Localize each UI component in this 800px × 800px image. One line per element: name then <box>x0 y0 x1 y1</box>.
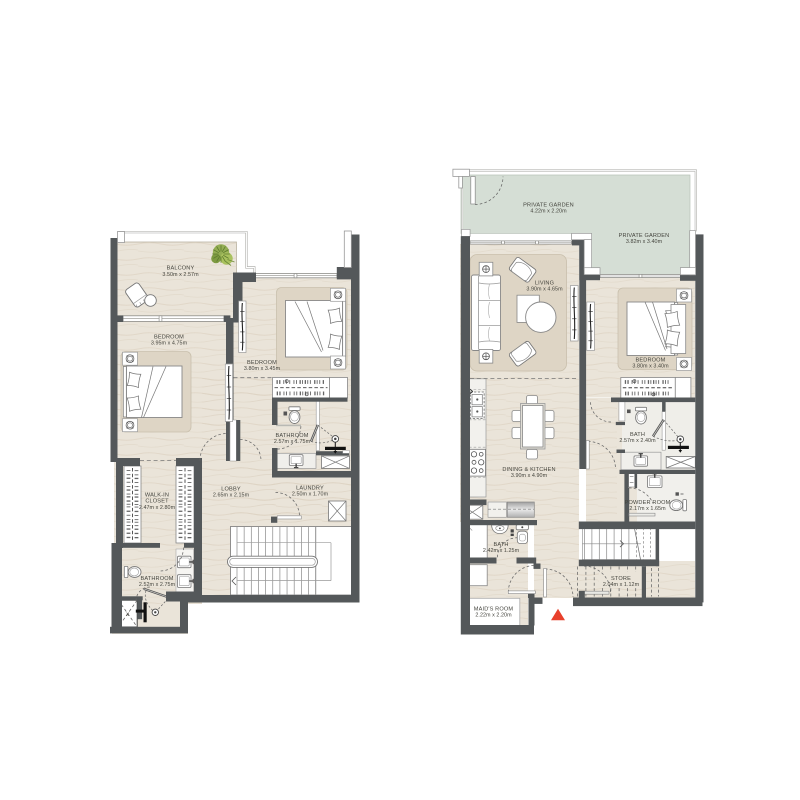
svg-text:3.50m x 2.57m: 3.50m x 2.57m <box>162 272 199 278</box>
svg-text:LOBBY: LOBBY <box>221 487 241 493</box>
svg-text:3.80m x 3.40m: 3.80m x 3.40m <box>632 364 669 370</box>
svg-text:BATH: BATH <box>493 542 508 548</box>
svg-text:PRIVATE GARDEN: PRIVATE GARDEN <box>619 233 670 239</box>
svg-text:2.52m x 2.75m: 2.52m x 2.75m <box>139 582 176 588</box>
svg-text:3.82m x 3.40m: 3.82m x 3.40m <box>626 239 663 245</box>
svg-text:BATHROOM: BATHROOM <box>275 433 308 439</box>
svg-text:2.04m x 1.12m: 2.04m x 1.12m <box>603 582 640 588</box>
svg-text:BALCONY: BALCONY <box>167 266 195 272</box>
svg-text:2.42m x 1.25m: 2.42m x 1.25m <box>483 548 520 554</box>
svg-text:2.17m x 1.65m: 2.17m x 1.65m <box>629 506 666 512</box>
svg-text:PRIVATE GARDEN: PRIVATE GARDEN <box>523 203 574 209</box>
svg-text:3.90m x 4.90m: 3.90m x 4.90m <box>511 473 548 479</box>
svg-text:WALK-IN: WALK-IN <box>145 493 169 499</box>
svg-text:CLOSET: CLOSET <box>145 499 169 505</box>
svg-text:x: x <box>126 612 129 618</box>
svg-text:STORE: STORE <box>611 576 631 582</box>
svg-text:3.80m x 3.45m: 3.80m x 3.45m <box>244 366 281 372</box>
svg-text:BEDROOM: BEDROOM <box>636 357 666 363</box>
svg-text:2.50m x 1.70m: 2.50m x 1.70m <box>292 492 329 498</box>
svg-text:BEDROOM: BEDROOM <box>154 335 184 341</box>
svg-text:3.90m x 4.65m: 3.90m x 4.65m <box>526 287 563 293</box>
svg-text:LAUNDRY: LAUNDRY <box>296 486 324 492</box>
svg-text:BATH: BATH <box>630 432 645 438</box>
svg-text:2.57m x 2.40m: 2.57m x 2.40m <box>619 438 656 444</box>
svg-text:2.57m x 1.75m: 2.57m x 1.75m <box>274 439 311 445</box>
svg-text:MAID'S ROOM: MAID'S ROOM <box>474 607 514 613</box>
svg-text:2.65m x 2.15m: 2.65m x 2.15m <box>213 493 250 499</box>
svg-text:LIVING: LIVING <box>535 281 554 287</box>
svg-text:BATHROOM: BATHROOM <box>140 576 173 582</box>
svg-text:DINING & KITCHEN: DINING & KITCHEN <box>502 467 555 473</box>
svg-text:2.47m x 2.80m: 2.47m x 2.80m <box>139 505 176 511</box>
svg-text:2.22m x 2.20m: 2.22m x 2.20m <box>475 613 512 619</box>
svg-text:3.95m x 4.75m: 3.95m x 4.75m <box>151 341 188 347</box>
svg-text:BEDROOM: BEDROOM <box>247 360 277 366</box>
svg-text:4.22m x 2.20m: 4.22m x 2.20m <box>530 209 567 215</box>
svg-text:POWDER ROOM: POWDER ROOM <box>625 500 671 506</box>
